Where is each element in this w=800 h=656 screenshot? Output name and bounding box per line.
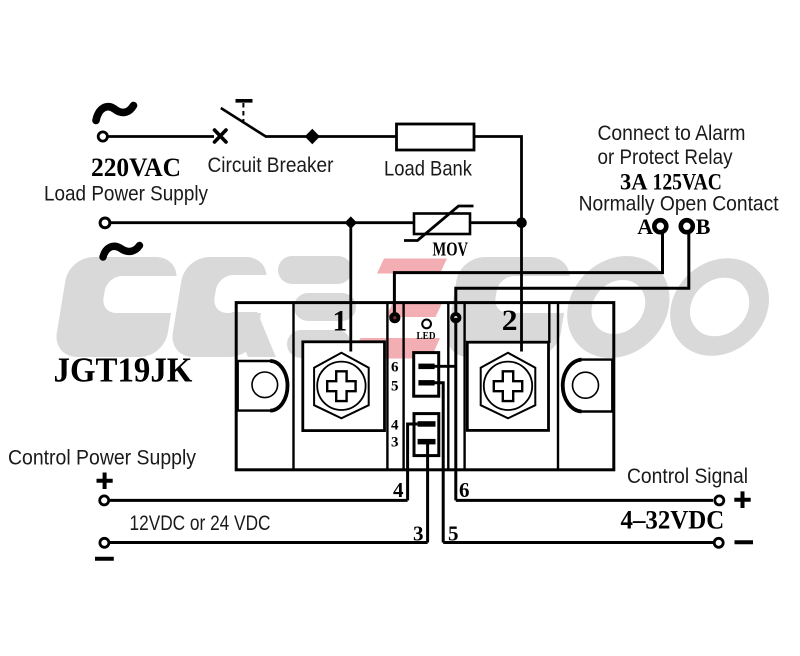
svg-text:Load Bank: Load Bank (384, 158, 472, 181)
svg-text:Connect to Alarm: Connect to Alarm (598, 122, 746, 145)
svg-text:or Protect Relay: or Protect Relay (598, 146, 733, 169)
svg-text:220VAC: 220VAC (91, 153, 181, 183)
svg-text:4–32VDC: 4–32VDC (621, 505, 725, 535)
svg-text:6: 6 (391, 360, 399, 376)
svg-text:3: 3 (391, 435, 399, 451)
svg-text:A: A (637, 214, 653, 239)
svg-text:2: 2 (502, 305, 518, 337)
svg-text:Load Power Supply: Load Power Supply (44, 183, 208, 206)
svg-text:3: 3 (413, 522, 424, 546)
svg-text:4: 4 (391, 417, 399, 433)
svg-text:Circuit Breaker: Circuit Breaker (208, 154, 334, 177)
svg-text:MOV: MOV (433, 239, 469, 261)
svg-text:1: 1 (333, 306, 348, 338)
svg-text:Control Power Supply: Control Power Supply (8, 446, 196, 469)
svg-text:JGT19JK: JGT19JK (54, 352, 193, 390)
svg-text:Normally Open Contact: Normally Open Contact (579, 193, 779, 216)
svg-text:Control Signal: Control Signal (627, 465, 748, 488)
svg-text:5: 5 (391, 378, 399, 394)
svg-text:6: 6 (459, 478, 470, 502)
svg-text:125VAC: 125VAC (653, 170, 723, 195)
svg-text:LED: LED (417, 330, 436, 342)
svg-text:B: B (696, 214, 711, 239)
svg-text:12VDC or 24 VDC: 12VDC or 24 VDC (130, 512, 271, 535)
svg-text:4: 4 (393, 478, 404, 502)
svg-text:3A: 3A (620, 170, 648, 195)
